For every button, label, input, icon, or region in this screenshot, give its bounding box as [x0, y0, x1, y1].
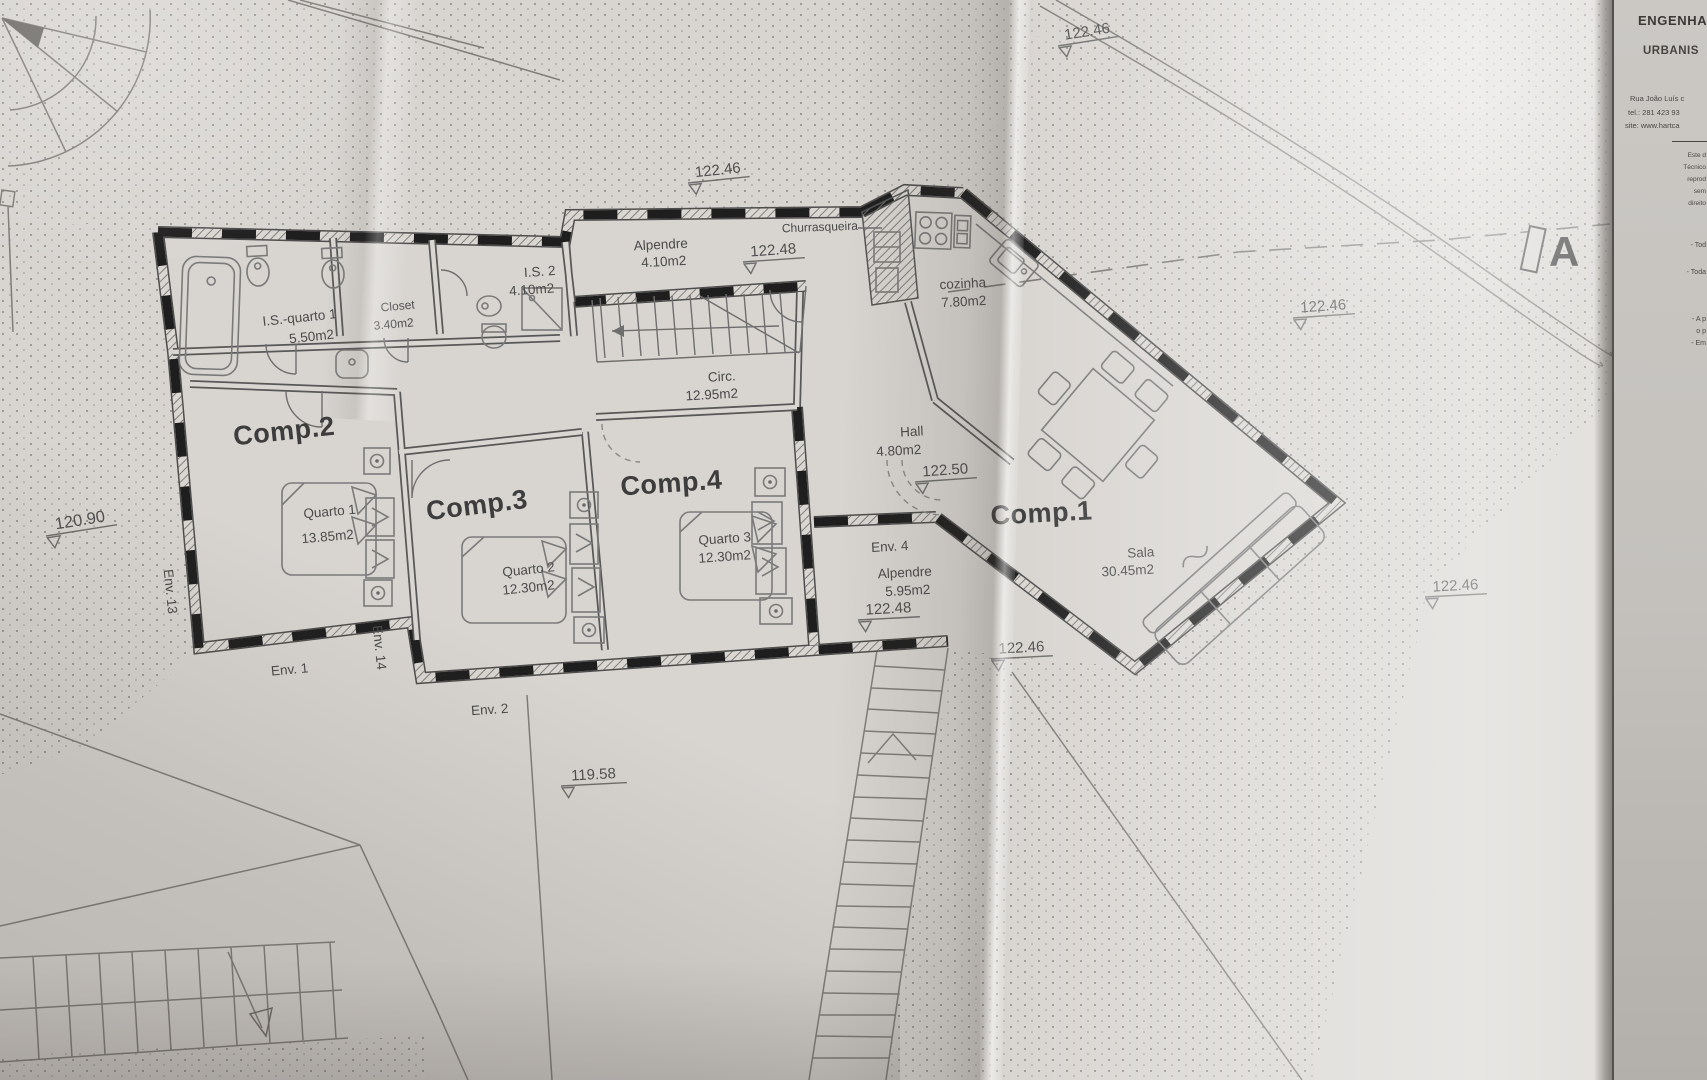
elevation-marker: 122.48 [742, 240, 806, 274]
room-area-closet: 3.40m2 [373, 315, 414, 332]
room-label-circ: Circ. [708, 368, 736, 384]
title-block-note: direito [1644, 200, 1706, 207]
room-label-quarto2: Quarto 2 [502, 559, 556, 579]
elevation-marker: 122.46 [1424, 576, 1487, 609]
churrasqueira-structure [862, 190, 918, 305]
company-subtitle: URBANIS [1643, 45, 1699, 57]
room-area-alpendre-top: 4.10m2 [641, 253, 687, 270]
room-label-quarto3: Quarto 3 [698, 529, 751, 548]
room-area-sala: 30.45m2 [1101, 562, 1154, 580]
room-label-sala: Sala [1127, 544, 1155, 560]
room-label-cozinha: cozinha [939, 275, 987, 292]
stove-icon [915, 212, 971, 250]
company-name: ENGENHA [1638, 13, 1707, 28]
floor-plan-drawing: Comp.2 Comp.3 Comp.4 Comp.1 I.S.-quarto … [0, 0, 1707, 1080]
section-marker-letter: A [1549, 228, 1579, 275]
floor-plan-photo: Comp.2 Comp.3 Comp.4 Comp.1 I.S.-quarto … [0, 0, 1707, 1080]
svg-text:122.46: 122.46 [1432, 576, 1479, 595]
svg-text:122.48: 122.48 [750, 240, 797, 260]
room-label-quarto1: Quarto 1 [303, 502, 357, 522]
room-label-alpendre-top: Alpendre [633, 236, 688, 254]
svg-text:122.48: 122.48 [865, 599, 912, 618]
bed-quarto1 [282, 448, 394, 606]
room-label-closet: Closet [380, 298, 416, 315]
room-area-quarto3: 12.30m2 [698, 547, 751, 566]
label-env14: Env. 14 [370, 624, 390, 671]
svg-text:122.50: 122.50 [922, 460, 969, 480]
room-label-is-quarto1: I.S.-quarto 1 [262, 306, 337, 329]
elevation-marker: 122.48 [857, 599, 920, 632]
svg-text:122.46: 122.46 [1300, 296, 1347, 316]
title-block-note: reprod [1644, 176, 1706, 183]
title-block-item: - Em [1654, 340, 1706, 347]
room-area-env4-alpendre: 5.95m2 [885, 582, 931, 599]
company-address: Rua João Luís c [1630, 94, 1684, 103]
room-area-is2: 4.10m2 [509, 280, 555, 298]
bathtub-icon [179, 256, 241, 376]
room-label-comp4: Comp.4 [619, 465, 723, 502]
title-block-item: o p [1654, 328, 1706, 335]
section-marker: A [1521, 226, 1579, 275]
title-block: ENGENHA URBANIS Rua João Luís c tel.: 28… [1612, 0, 1707, 1080]
title-block-item: - A p [1654, 316, 1706, 323]
room-area-circ: 12.95m2 [685, 386, 738, 404]
label-env2: Env. 2 [471, 701, 509, 719]
room-label-is2: I.S. 2 [523, 263, 555, 280]
room-area-cozinha: 7.80m2 [941, 293, 987, 310]
title-block-item: - Tod [1654, 242, 1706, 249]
toilet-icon [246, 245, 270, 286]
svg-text:122.46: 122.46 [998, 638, 1045, 657]
elevation-marker: 119.58 [560, 765, 627, 798]
title-block-item: - Toda [1654, 269, 1706, 276]
stairs-direction-arrow [612, 325, 624, 337]
title-block-note: Este d [1644, 152, 1706, 159]
room-area-quarto1: 13.85m2 [301, 527, 355, 547]
label-env1: Env. 1 [270, 660, 308, 678]
company-website: site: www.hartca [1625, 121, 1680, 130]
room-label-comp2: Comp.2 [232, 411, 337, 451]
room-label-comp1: Comp.1 [990, 495, 1093, 530]
elevation-marker: 122.50 [914, 460, 978, 494]
washbasin-icon [336, 350, 368, 378]
title-block-divider [1672, 141, 1707, 142]
title-block-note: Técnico [1644, 164, 1706, 171]
room-area-hall: 4.80m2 [876, 442, 922, 459]
label-env4: Env. 4 [871, 538, 909, 555]
room-label-churrasqueira: Churrasqueira [782, 219, 859, 236]
svg-text:119.58: 119.58 [571, 765, 617, 784]
room-label-comp3: Comp.3 [424, 484, 529, 526]
company-phone: tel.: 281 423 93 [1628, 108, 1680, 117]
title-block-note: sem [1644, 188, 1706, 195]
room-label-hall: Hall [900, 423, 924, 439]
room-label-env4-alpendre: Alpendre [877, 564, 932, 582]
